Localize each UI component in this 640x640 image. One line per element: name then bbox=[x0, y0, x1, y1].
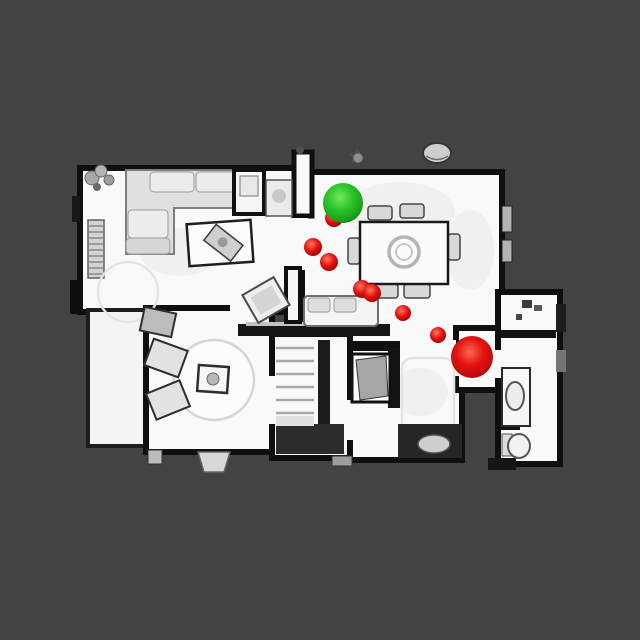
wall-alcove bbox=[234, 170, 264, 214]
scan-viewport bbox=[0, 0, 640, 640]
living-wall-stub bbox=[286, 268, 300, 322]
hall-bench bbox=[304, 296, 378, 326]
sofa-chaise bbox=[126, 238, 170, 254]
wall-sconce bbox=[423, 143, 451, 163]
dining-chair bbox=[348, 238, 360, 264]
dining-chair bbox=[368, 206, 392, 220]
stair-landing bbox=[276, 416, 314, 426]
radiator bbox=[88, 220, 104, 278]
dining-chair bbox=[448, 234, 460, 260]
waypoint-marker bbox=[430, 327, 446, 343]
closet-speck bbox=[522, 300, 532, 308]
wall-plant bbox=[350, 149, 363, 163]
waypoint-marker bbox=[363, 284, 381, 302]
waypoint-marker bbox=[304, 238, 322, 256]
entry-cabinet bbox=[418, 435, 450, 453]
dining-table bbox=[360, 222, 448, 284]
closet-speck bbox=[534, 305, 542, 311]
goal-marker bbox=[451, 336, 493, 378]
window-sill bbox=[502, 206, 512, 232]
fireplace bbox=[266, 180, 292, 216]
room-annex bbox=[88, 310, 146, 446]
window-sill bbox=[502, 240, 512, 262]
closet-speck bbox=[516, 314, 522, 320]
table-tray bbox=[197, 365, 229, 393]
sink bbox=[506, 382, 524, 410]
floorplan-render bbox=[0, 0, 640, 640]
bath-divider-wall bbox=[500, 330, 556, 338]
dining-chair bbox=[400, 204, 424, 218]
sofa-cushion bbox=[150, 172, 194, 192]
closet-contents bbox=[356, 356, 388, 400]
bay-seat bbox=[198, 452, 230, 472]
sofa-cushion bbox=[128, 210, 168, 238]
start-marker bbox=[323, 183, 363, 223]
chimney-stub bbox=[294, 152, 312, 216]
waypoint-marker bbox=[395, 305, 411, 321]
toilet bbox=[508, 434, 530, 458]
stair-banister bbox=[318, 340, 330, 428]
nook-chair bbox=[140, 307, 176, 337]
dining-chair bbox=[404, 284, 430, 298]
stair-landing-shadow bbox=[276, 424, 344, 454]
waypoint-marker bbox=[320, 253, 338, 271]
